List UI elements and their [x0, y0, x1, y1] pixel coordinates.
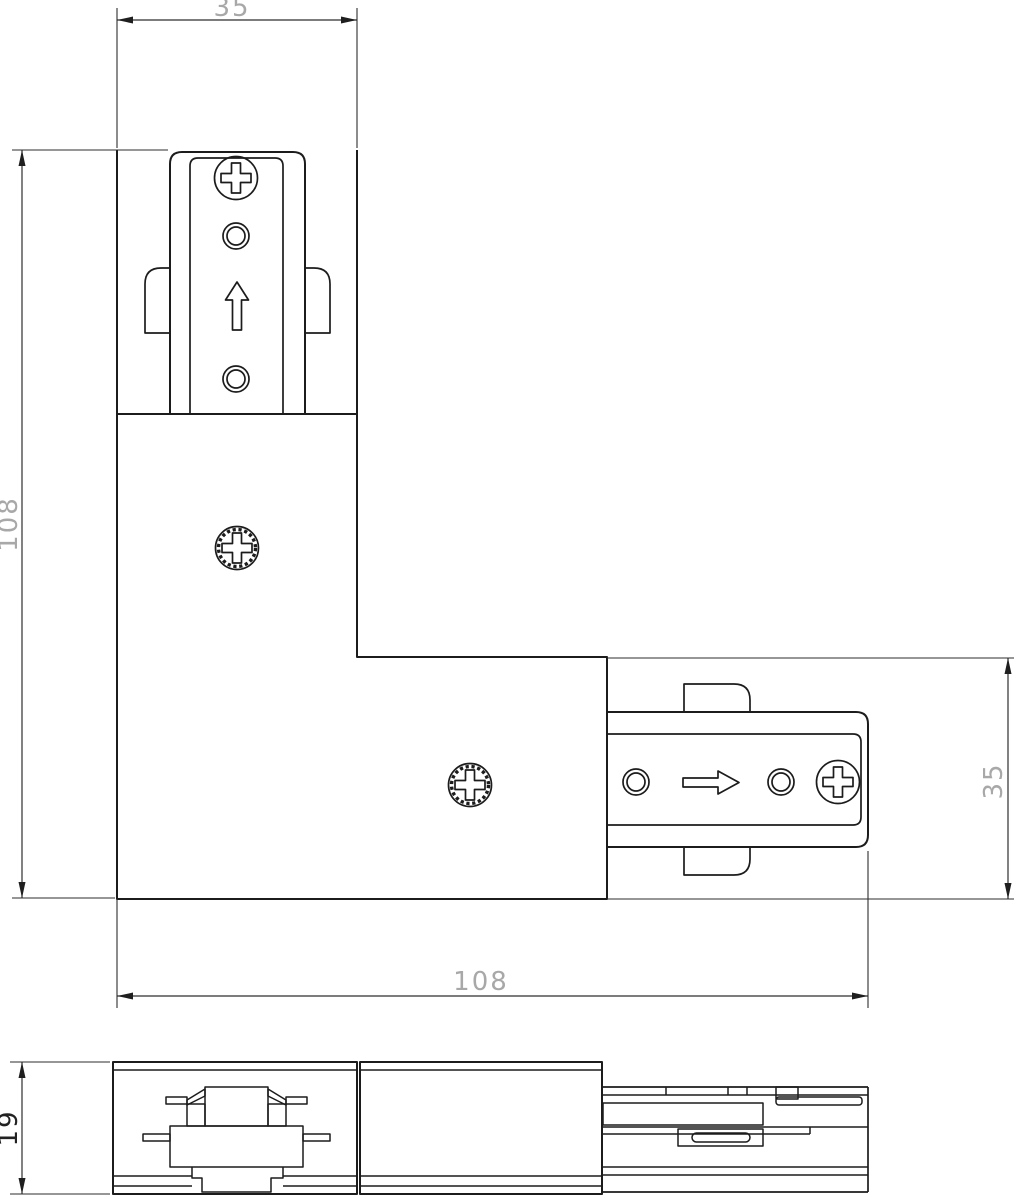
l-body-outline: [117, 414, 607, 899]
phillips-screw-icon: [215, 157, 258, 200]
side-view-left-section: [113, 1062, 357, 1194]
connector-outer-plate: [607, 712, 868, 847]
direction-arrow-up-icon: [226, 282, 249, 330]
arrowhead: [19, 1062, 26, 1078]
dimension-label: 35: [213, 0, 250, 23]
contact-hole-icon: [623, 769, 649, 795]
contact-hole-icon: [768, 769, 794, 795]
profile-main-block: [170, 1126, 303, 1167]
profile-side-column: [187, 1104, 205, 1126]
plan-view: [117, 150, 868, 899]
profile-contact-pin: [303, 1134, 330, 1141]
latch-tab-top: [684, 684, 750, 712]
profile-wing-tab: [166, 1097, 187, 1104]
profile-wing-tab: [286, 1097, 307, 1104]
connector-inner-plate: [190, 158, 283, 414]
dimension-label: 108: [0, 496, 24, 552]
contact-hole-icon: [223, 366, 249, 392]
profile-wing: [268, 1089, 286, 1105]
knurled-screw-icon: [216, 527, 259, 570]
side-view-right-section: [603, 1087, 868, 1192]
profile-contact-pin: [143, 1134, 170, 1141]
top-connector: [117, 150, 357, 414]
latch-tab-left: [145, 268, 170, 333]
latch-tab-bottom: [684, 847, 750, 875]
direction-arrow-right-icon: [683, 771, 739, 794]
arrowhead: [117, 993, 133, 1000]
profile-center-column: [205, 1087, 268, 1126]
arrowhead: [19, 1178, 26, 1194]
arrowhead: [1005, 883, 1012, 899]
cad-drawing-canvas: 35 108 35 108 19: [0, 0, 1024, 1200]
arrowhead: [1005, 658, 1012, 674]
phillips-screw-icon: [817, 761, 860, 804]
cad-drawing-page: 35 108 35 108 19: [0, 0, 1024, 1200]
housing-outline: [113, 1062, 357, 1194]
housing-outline: [360, 1062, 602, 1194]
profile-side-column: [268, 1104, 286, 1126]
dimension-right-height: 35: [607, 658, 1014, 899]
arrowhead: [341, 17, 357, 24]
right-connector: [607, 684, 868, 875]
end-upper-box: [603, 1103, 763, 1125]
side-view: [113, 1062, 868, 1194]
dimension-label: 35: [979, 762, 1009, 799]
dimension-label: 19: [0, 1109, 24, 1146]
profile-wing: [187, 1089, 205, 1105]
latch-tab-right: [305, 268, 330, 333]
arrowhead: [19, 882, 26, 898]
dimension-bottom-width: 108: [117, 851, 868, 1008]
arrowhead: [19, 150, 26, 166]
knurled-screw-icon: [449, 764, 492, 807]
dimension-left-height: 108: [0, 150, 168, 898]
profile-foot: [192, 1167, 283, 1192]
arrowhead: [852, 993, 868, 1000]
dimension-profile-height: 19: [0, 1062, 110, 1194]
contact-hole-icon: [223, 223, 249, 249]
side-view-middle-section: [360, 1062, 602, 1194]
arrowhead: [117, 17, 133, 24]
latch-tongue: [776, 1097, 862, 1105]
dimension-label: 108: [453, 967, 509, 997]
dimension-top-width: 35: [117, 0, 357, 148]
